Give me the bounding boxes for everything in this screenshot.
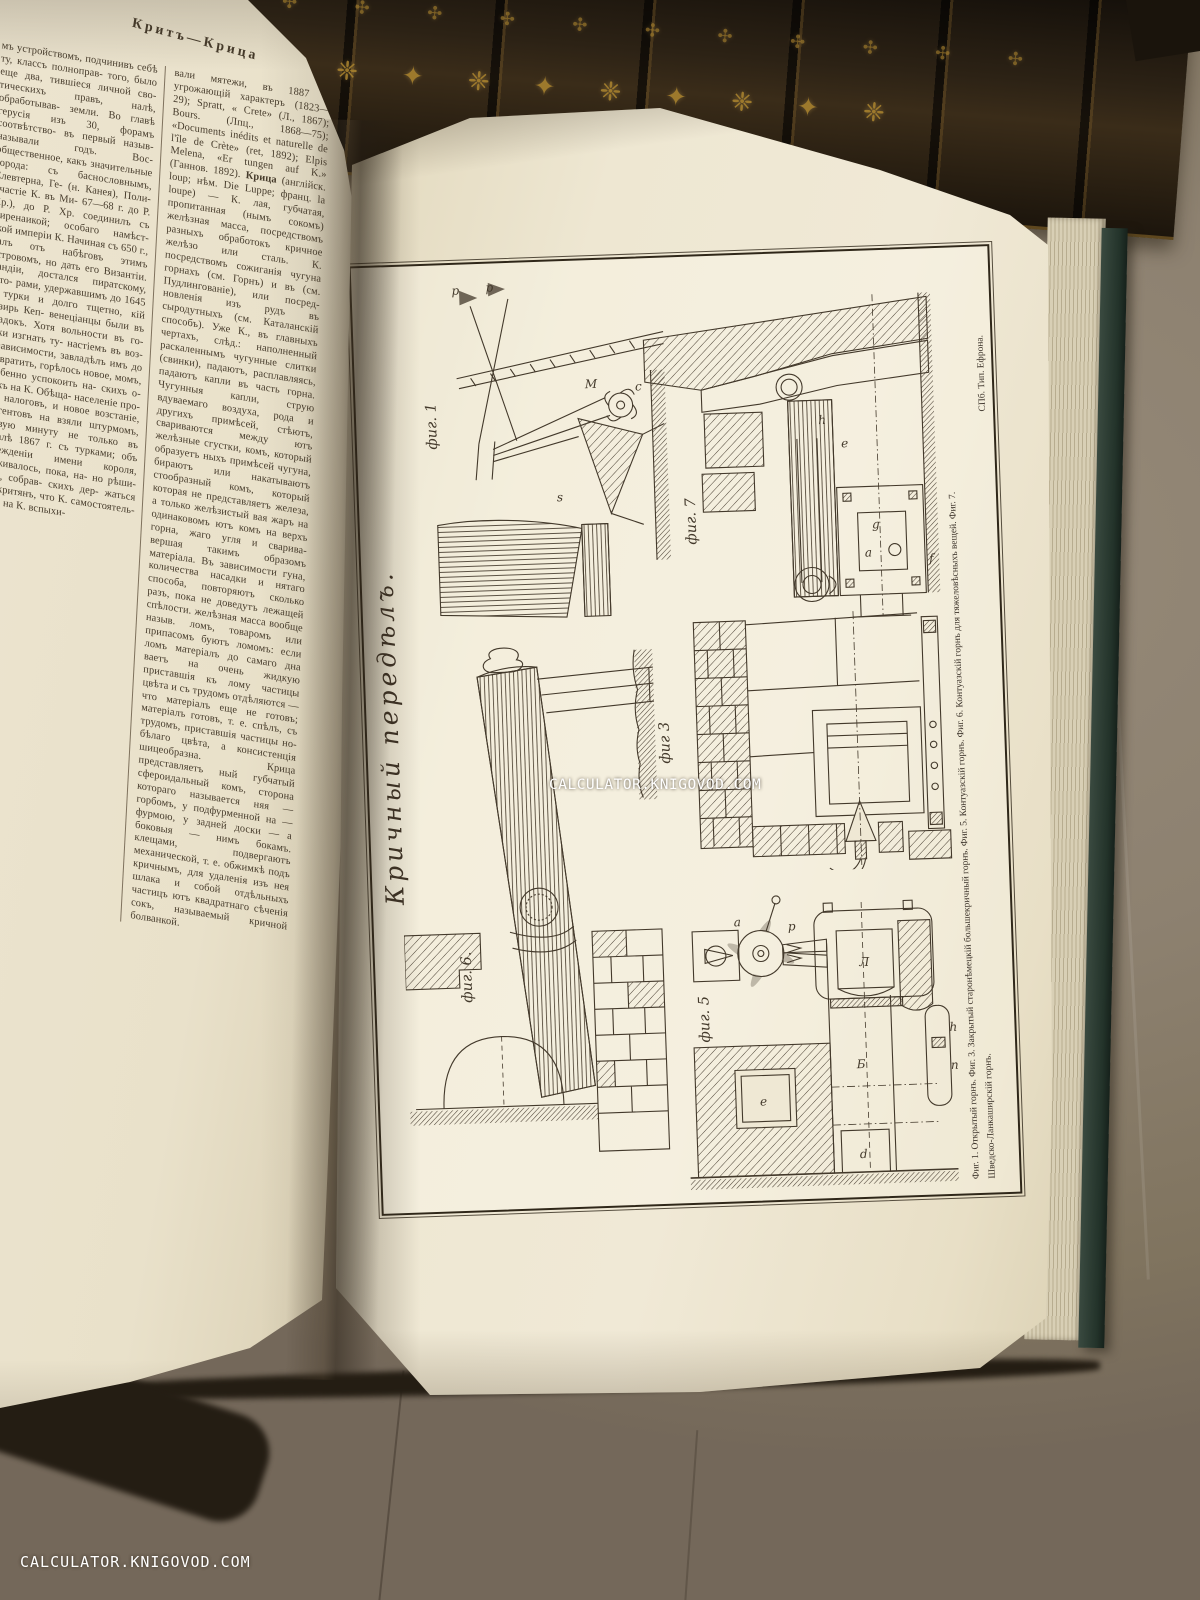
paper-crease xyxy=(684,1430,699,1600)
part-letter: s xyxy=(557,490,564,504)
engraving-plate: Кричный передѣлъ. фиг. 1 фиг. 7 фиг 3 фи… xyxy=(349,244,1023,1216)
part-letter: n xyxy=(951,1058,959,1072)
label-fig-3-text: фиг 3 xyxy=(656,705,674,764)
part-letter: g xyxy=(872,517,880,531)
part-letter: a xyxy=(865,545,873,559)
column2-body: (англійск. loup; нѣм. Die Luppe; франц. … xyxy=(130,171,326,932)
part-letter: p xyxy=(451,284,459,298)
part-letter: p xyxy=(485,280,493,294)
right-column: вали мятежи, въ 1887 и угрожающій характ… xyxy=(120,66,331,948)
plate-imprint: СПб. Тип. Ефрона. xyxy=(972,256,991,411)
part-letter: h xyxy=(949,1020,957,1034)
paper-crease xyxy=(377,1371,404,1600)
part-letter: e xyxy=(760,1094,768,1108)
part-letter: a xyxy=(734,915,742,929)
figure-6-drawing xyxy=(394,631,672,1167)
left-page-text-block: Критъ—Крица мъ устройствомъ, подчинивъ с… xyxy=(0,2,354,951)
watermark-center: CALCULATOR.KNIGOVOD.COM xyxy=(549,777,761,793)
part-letter: d xyxy=(860,1147,868,1161)
watermark-bottom-left: CALCULATOR.KNIGOVOD.COM xyxy=(20,1553,251,1571)
part-letter: h xyxy=(818,413,826,427)
figure-3-drawing xyxy=(685,604,954,880)
column2-intro: вали мятежи, въ 1887 и угрожающій характ… xyxy=(170,68,331,182)
part-letter: e xyxy=(841,436,849,450)
label-fig-3: фиг 3 xyxy=(656,705,680,764)
text-columns: мъ устройствомъ, подчинивъ себѣ ту, клас… xyxy=(0,40,352,951)
figure-5-drawing: a p Л Б d e h n xyxy=(675,881,966,1198)
figure-7-drawing: e a g h f xyxy=(634,284,946,631)
part-letter: M xyxy=(584,377,598,391)
part-letter: Л xyxy=(858,955,870,969)
part-letter: p xyxy=(788,919,796,933)
right-page: Кричный передѣлъ. фиг. 1 фиг. 7 фиг 3 фи… xyxy=(325,95,1065,1410)
corner-book-edge xyxy=(1122,0,1200,61)
part-letter: Б xyxy=(856,1057,866,1071)
photo-of-open-book: ❈ ✦ ❈ ✦ ❈ ✦ ❈ ✦ ❈ ✦ ❈ ✣ ✣ ✣ ✣ ✣ ✣ ✣ ✣ ✣ … xyxy=(0,0,1200,1600)
